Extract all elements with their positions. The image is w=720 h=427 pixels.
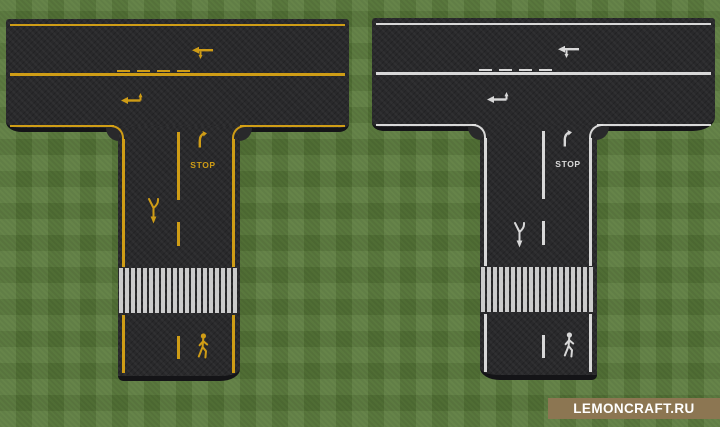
edge-line-bottom-left xyxy=(10,125,114,127)
stop-marking: STOP xyxy=(546,159,590,170)
stem-divider-line xyxy=(542,131,545,199)
lane-arrow-right-with-turn-icon xyxy=(121,92,144,105)
edge-line-top xyxy=(10,24,345,26)
pedestrian-icon xyxy=(195,333,211,360)
stem-edge-line-right xyxy=(232,315,235,373)
center-line-solid xyxy=(376,72,711,75)
stem-divider-dash xyxy=(177,336,180,359)
stop-marking: STOP xyxy=(181,160,225,171)
merge-arrow-icon xyxy=(147,198,160,224)
stem-edge-line-left xyxy=(484,314,487,372)
minecraft-road-scene: STOP xyxy=(0,0,720,427)
asphalt-bar xyxy=(6,19,349,132)
zebra-crosswalk xyxy=(119,268,237,313)
watermark-text: LEMONCRAFT.RU xyxy=(573,401,694,416)
center-line-solid xyxy=(10,73,345,76)
zebra-crosswalk xyxy=(481,267,594,312)
stem-edge-line-right xyxy=(589,314,592,372)
lane-arrow-left-with-turn-icon xyxy=(192,46,214,59)
merge-arrow-icon xyxy=(513,222,526,248)
stem-edge-line-left xyxy=(122,139,125,267)
pedestrian-icon xyxy=(561,332,577,359)
stem-divider-dash xyxy=(542,221,545,245)
watermark-banner: LEMONCRAFT.RU xyxy=(548,398,720,419)
turn-hook-arrow-icon xyxy=(562,130,572,147)
edge-line-bottom-right xyxy=(597,124,711,126)
edge-line-bottom-right xyxy=(240,125,345,127)
stem-edge-line-right xyxy=(589,138,592,266)
stem-divider-line xyxy=(177,132,180,200)
stem-divider-dash xyxy=(177,222,180,246)
center-line-dashed xyxy=(479,69,555,71)
stem-edge-line-left xyxy=(484,138,487,266)
stem-edge-line-right xyxy=(232,139,235,267)
stem-edge-line-left xyxy=(122,315,125,373)
lane-arrow-left-with-turn-icon xyxy=(558,45,580,58)
stem-divider-dash xyxy=(542,335,545,358)
road-tile-yellow: STOP xyxy=(6,19,349,381)
asphalt-bar xyxy=(372,18,715,131)
center-line-dashed xyxy=(117,70,193,72)
lane-arrow-right-with-turn-icon xyxy=(487,91,510,104)
edge-line-top xyxy=(376,23,711,25)
edge-line-bottom-left xyxy=(376,124,476,126)
road-tile-white: STOP xyxy=(372,18,715,380)
turn-hook-arrow-icon xyxy=(197,131,207,148)
